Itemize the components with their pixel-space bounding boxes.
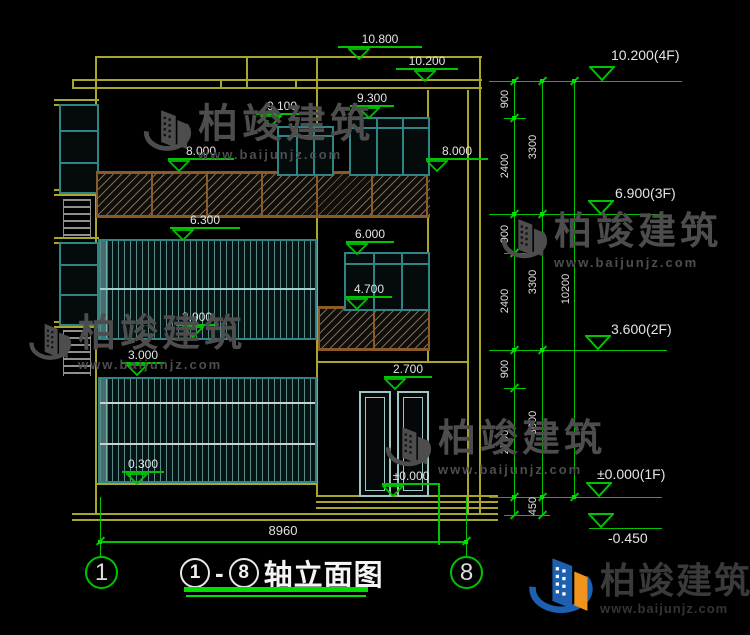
- dim-node: [512, 79, 516, 83]
- elevation-value: 6.000: [346, 228, 394, 241]
- ground-line: [72, 519, 498, 521]
- axis-bubble-8: 8: [450, 556, 483, 589]
- title-underline: [184, 587, 368, 592]
- window-mullion: [61, 162, 97, 164]
- elevation-value: 4.700: [346, 283, 392, 296]
- level-line-ground: [589, 528, 662, 529]
- axis-bubble-1: 1: [85, 556, 118, 589]
- floor-label-2f: 3.600(2F): [611, 321, 672, 337]
- dim-node: [540, 495, 544, 499]
- watermark-url: www.baijunjz.com: [554, 255, 722, 270]
- title-axis-to: 8: [229, 558, 259, 588]
- footer-brand-url: www.baijunjz.com: [600, 601, 750, 616]
- balcony-railing-8000: [96, 171, 430, 218]
- dim-node: [540, 79, 544, 83]
- brand-logo-icon: [498, 213, 548, 269]
- footer-text: 柏竣建筑 www.baijunjz.com: [600, 563, 750, 616]
- elevation-marker-6300: 6.300: [170, 214, 240, 241]
- roof-cap: [72, 79, 74, 89]
- floor-label-4f: 10.200(4F): [611, 47, 679, 63]
- watermark-brand: 柏竣建筑: [78, 315, 246, 355]
- dim-label: 2400: [499, 146, 511, 186]
- floor-label-ground: -0.450: [608, 530, 648, 546]
- dim-label-total: 10200: [560, 269, 572, 309]
- elevation-value: 8.000: [426, 145, 488, 158]
- watermark-brand: 柏竣建筑: [554, 213, 722, 253]
- dimension-line: [100, 541, 467, 543]
- elevation-value: 2.700: [384, 363, 432, 376]
- watermark-url: www.baijunjz.com: [198, 147, 374, 162]
- overall-width-dimension: 8960: [261, 523, 305, 538]
- watermark-url: www.baijunjz.com: [78, 357, 246, 372]
- elevation-triangle-icon: [585, 335, 611, 350]
- elevation-triangle-icon: [588, 513, 614, 528]
- title-underline: [186, 595, 366, 597]
- dim-node: [512, 348, 516, 352]
- watermark: 柏竣建筑 www.baijunjz.com: [26, 315, 246, 373]
- dim-node: [572, 495, 576, 499]
- elevation-triangle-icon: [172, 229, 194, 241]
- watermark-brand: 柏竣建筑: [438, 420, 606, 460]
- witness-line: [466, 497, 467, 557]
- brand-logo-icon: [382, 420, 432, 478]
- watermark-text: 柏竣建筑 www.baijunjz.com: [78, 315, 246, 372]
- elevation-value: 6.300: [170, 214, 240, 227]
- dim-node: [572, 79, 576, 83]
- witness-line: [100, 497, 101, 557]
- footer-brand-name: 柏竣建筑: [600, 563, 750, 599]
- window-mullion: [401, 254, 403, 309]
- elevation-triangle-icon: [348, 48, 370, 60]
- elevation-marker-6000: 6.000: [346, 228, 394, 255]
- window-mullion: [61, 130, 97, 132]
- elevation-triangle-icon: [346, 243, 368, 255]
- elevation-triangle-icon: [126, 473, 148, 485]
- step-line: [316, 501, 498, 503]
- balcony-railing-4700: [318, 306, 430, 351]
- title-axis-from: 1: [180, 558, 210, 588]
- watermark-brand: 柏竣建筑: [198, 103, 374, 145]
- watermark-text: 柏竣建筑 www.baijunjz.com: [438, 420, 606, 477]
- watermark-text: 柏竣建筑 www.baijunjz.com: [198, 103, 374, 162]
- floor-label-1f: ±0.000(1F): [597, 466, 665, 482]
- brand-logo-icon: [524, 553, 594, 625]
- elevation-marker-4700: 4.700: [346, 283, 392, 310]
- watermark: 柏竣建筑 www.baijunjz.com: [382, 420, 606, 478]
- dim-node: [512, 495, 516, 499]
- watermark-url: www.baijunjz.com: [438, 462, 606, 477]
- window-mullion: [402, 119, 404, 174]
- footer-brand: 柏竣建筑 www.baijunjz.com: [524, 553, 750, 625]
- dim-node: [512, 116, 516, 120]
- elevation-value: 10.800: [338, 33, 422, 46]
- elevation-marker-0300: 0.300: [122, 458, 164, 485]
- title-dash: -: [215, 563, 224, 583]
- window-transom: [346, 263, 428, 265]
- bay-window: [59, 104, 99, 194]
- elevation-triangle-icon: [382, 485, 404, 497]
- dim-label: 3300: [527, 127, 539, 167]
- elevation-triangle-icon: [384, 378, 406, 390]
- step-line: [316, 507, 498, 509]
- dim-node: [98, 540, 102, 544]
- ac-grille: [63, 199, 91, 238]
- elevation-triangle-icon: [589, 66, 615, 81]
- louver-highlight: [101, 379, 108, 481]
- louver-divider: [100, 288, 315, 290]
- dim-node: [464, 540, 468, 544]
- window-mullion: [376, 119, 378, 174]
- elevation-value: 0.300: [122, 458, 164, 471]
- roof-tick: [220, 79, 222, 89]
- dim-label: 900: [499, 79, 511, 119]
- cad-elevation-canvas: 10.800 10.200 9.100 9.300 8.000 8.000 6.…: [0, 0, 750, 635]
- parapet-post: [246, 56, 248, 89]
- elevation-marker-8000-right: 8.000: [426, 145, 488, 172]
- elevation-marker-2700: 2.700: [384, 363, 432, 390]
- sill-line: [54, 194, 99, 196]
- window-mullion: [61, 294, 97, 296]
- elevation-triangle-icon: [414, 70, 436, 82]
- ground-line: [72, 513, 498, 515]
- elevation-value: 10.200: [396, 55, 458, 68]
- roof-line: [72, 87, 482, 89]
- elevation-triangle-icon: [346, 298, 368, 310]
- dim-label: 450: [527, 486, 539, 526]
- window-mullion: [61, 264, 97, 266]
- elevation-marker-10200: 10.200: [396, 55, 458, 82]
- elevation-triangle-icon: [426, 160, 448, 172]
- watermark: 柏竣建筑 www.baijunjz.com: [140, 103, 374, 163]
- louver-divider: [100, 443, 315, 445]
- brand-logo-icon: [140, 103, 192, 163]
- sill-line: [54, 99, 99, 101]
- roof-tick: [295, 79, 297, 89]
- dim-label: 2400: [499, 281, 511, 321]
- dim-node: [540, 348, 544, 352]
- floor-label-3f: 6.900(3F): [615, 185, 676, 201]
- louver-divider: [100, 402, 315, 404]
- level-line-4f: [489, 81, 682, 82]
- brand-logo-icon: [26, 315, 72, 373]
- dim-label: 900: [499, 349, 511, 389]
- watermark-text: 柏竣建筑 www.baijunjz.com: [554, 213, 722, 270]
- watermark: 柏竣建筑 www.baijunjz.com: [498, 213, 722, 270]
- elevation-triangle-icon: [586, 482, 612, 497]
